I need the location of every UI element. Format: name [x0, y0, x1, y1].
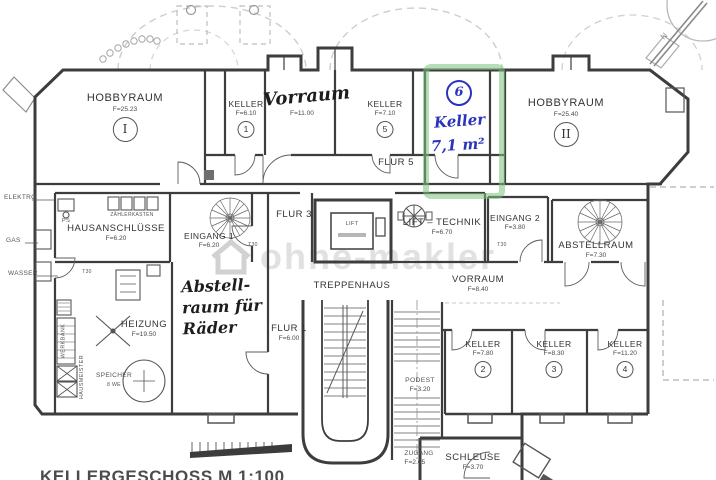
room-label-keller-5: KELLER F=7.10 5: [367, 99, 402, 138]
room-label-schleuse: SCHLEUSE F=3.70: [445, 452, 500, 472]
hausmeister-label: HAUSMEISTER: [79, 355, 85, 399]
zaehlerkasten-label: ZÄHLERKASTEN: [110, 212, 153, 218]
room-label-eingang-1: EINGANG 1 F=6.20: [184, 231, 234, 250]
door-rating-t30-1: T30: [82, 269, 92, 275]
room-number-badge: 5: [376, 121, 393, 138]
room-label-treppenhaus: TREPPENHAUS: [314, 280, 391, 291]
watermark-text: ohne-makler: [260, 236, 496, 278]
room-number-badge: 4: [616, 361, 633, 378]
room-label-flur-1: FLUR 1 F=6.00: [271, 323, 307, 343]
utility-wasser-label: WASSER: [8, 270, 38, 277]
room-label-hobbyraum-2: HOBBYRAUM F=25.40 II: [528, 97, 604, 147]
room-label-flur-5: FLUR 5: [378, 157, 414, 168]
room-label-hobbyraum-1: HOBBYRAUM F=25.23 I: [87, 92, 163, 142]
compass-icon: N: [650, 0, 716, 66]
speicher-label: SPEICHER 8 WE: [96, 372, 132, 388]
plan-title: KELLERGESCHOSS M 1:100: [40, 467, 285, 480]
room-number-badge: 3: [545, 361, 562, 378]
utility-elektro-label: ELEKTRO: [4, 194, 36, 201]
werkbank-label: WERKBANK: [60, 324, 66, 359]
room-label-hausanschluesse: HAUSANSCHLÜSSE F=6.20: [67, 223, 165, 243]
room-label-zugang: ZUGANG F=2.65: [404, 450, 433, 467]
room-label-flur-3: FLUR 3: [276, 209, 312, 220]
ps-label: PS: [62, 218, 70, 225]
lift-label: LIFT: [345, 221, 358, 228]
room-number-badge: II: [554, 122, 579, 147]
room-label-heizung: HEIZUNG F=19.50: [121, 319, 167, 339]
room-label-eingang-2: EINGANG 2 F=3.80: [490, 213, 540, 232]
highlighted-unit-number: 6: [446, 80, 472, 106]
door-rating-t30-3: T30: [497, 242, 507, 248]
highlighted-unit-area: 7,1 m²: [431, 135, 486, 156]
highlighted-unit-name: Keller: [433, 110, 485, 132]
room-label-keller-3: KELLER F=8.30 3: [536, 339, 571, 378]
room-number-badge: 2: [474, 361, 491, 378]
room-label-vorraum: VORRAUM F=8.40: [452, 274, 504, 294]
room-label-podest: PODEST F=3.20: [405, 377, 435, 394]
room-label-abstellraum: ABSTELLRAUM F=7.30: [558, 240, 633, 260]
door-rating-t30-2: T30: [248, 242, 258, 248]
room-number-badge: I: [113, 117, 138, 142]
room-area-vorraum-top: F=11.00: [290, 109, 314, 118]
handwritten-abstellraum-note: Abstell- raum für Räder: [181, 275, 263, 340]
utility-gas-label: GAS: [6, 237, 21, 244]
room-label-keller-1: KELLER F=6.10 1: [228, 99, 263, 138]
room-number-badge: 1: [237, 121, 254, 138]
room-label-keller-4: KELLER F=11.20 4: [607, 339, 642, 378]
door-arcs: [55, 155, 645, 478]
room-label-keller-2: KELLER F=7.80 2: [465, 339, 500, 378]
floorplan-page: N: [0, 0, 716, 480]
room-label-lift-technik: LIFT – TECHNIK F=6.70: [403, 217, 481, 237]
